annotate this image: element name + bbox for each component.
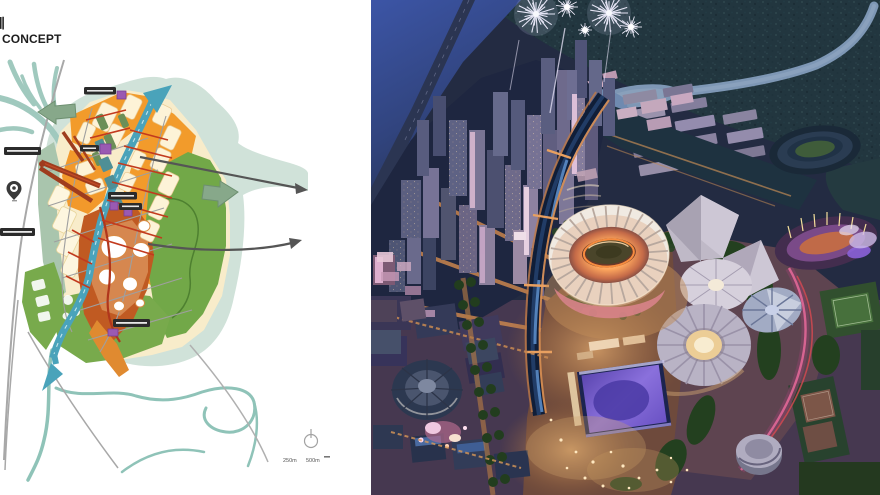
svg-text:500m: 500m: [306, 458, 320, 464]
svg-text:CONCEPT: CONCEPT: [2, 32, 62, 46]
svg-text:250m: 250m: [283, 458, 297, 464]
svg-text:계: 계: [0, 16, 5, 31]
